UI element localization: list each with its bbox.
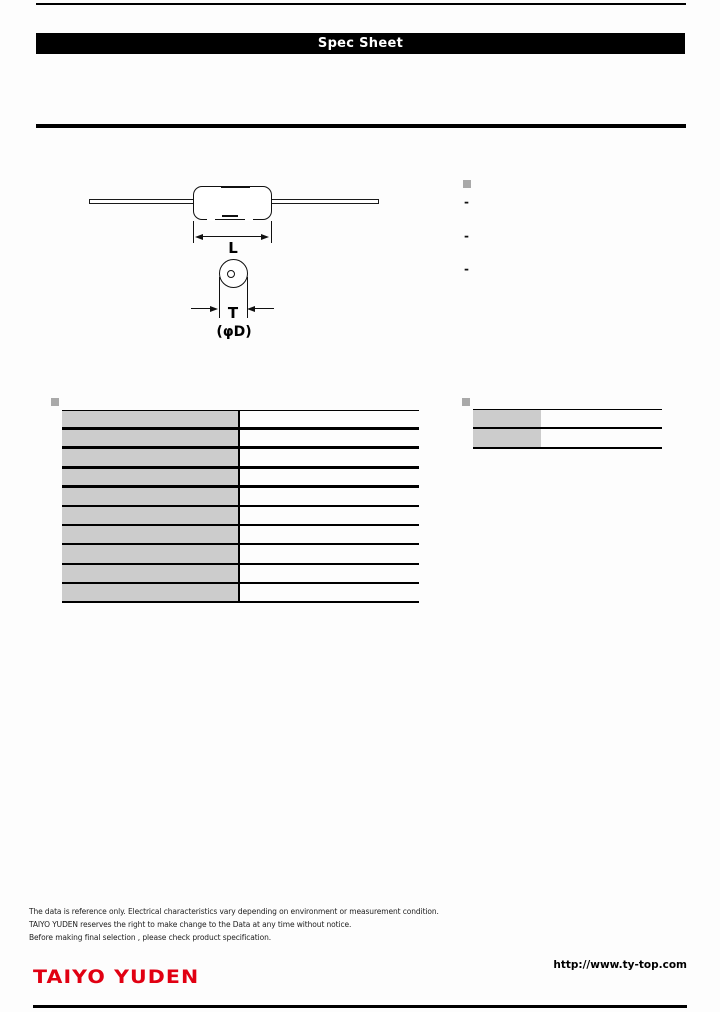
spec-label-cell — [62, 526, 240, 543]
side-value-cell — [541, 429, 662, 446]
spec-sheet-page: Spec Sheet L T (φD) - - - — [0, 0, 720, 1012]
arrowhead-left-icon — [195, 234, 203, 240]
dim-label-length: L — [222, 239, 244, 257]
bottom-rule — [33, 1005, 687, 1008]
spec-label-cell — [62, 411, 240, 427]
table-row — [62, 449, 419, 468]
dim-label-thickness: T — [222, 304, 244, 322]
body-bottom-dash — [222, 215, 238, 217]
section-bullet-icon — [463, 180, 471, 188]
spec-label-cell — [62, 430, 240, 446]
side-value-cell — [541, 410, 662, 427]
side-label-cell — [473, 410, 541, 427]
taiyo-yuden-logo: TAIYO YUDEN — [33, 966, 199, 988]
disclaimer-line: Before making final selection , please c… — [29, 932, 439, 945]
body-bottom-gap-left — [207, 217, 215, 221]
side-table — [473, 409, 662, 449]
dim-line-T-left — [191, 308, 212, 309]
banner-title: Spec Sheet — [318, 36, 403, 51]
spec-value-cell — [240, 584, 419, 601]
table-row — [473, 429, 662, 448]
spec-value-cell — [240, 545, 419, 562]
top-rule — [36, 3, 686, 5]
table-row — [62, 565, 419, 584]
disclaimer-line: TAIYO YUDEN reserves the right to make c… — [29, 919, 439, 932]
dim-line-L — [199, 236, 266, 237]
spec-value-cell — [240, 469, 419, 485]
arrowhead-right-icon — [261, 234, 269, 240]
table-row — [62, 507, 419, 526]
body-top-dash — [221, 186, 250, 188]
dim-ext-line-right — [271, 221, 272, 243]
table-row — [62, 430, 419, 449]
side-label-cell — [473, 429, 541, 446]
spec-table — [62, 410, 419, 603]
arrowhead-T-left-icon — [210, 306, 218, 312]
spec-label-cell — [62, 488, 240, 505]
spec-label-cell — [62, 507, 240, 524]
dim-label-diameter: (φD) — [209, 324, 259, 340]
table-row — [62, 584, 419, 603]
spec-label-cell — [62, 469, 240, 485]
arrowhead-T-right-icon — [247, 306, 255, 312]
spec-value-cell — [240, 430, 419, 446]
tangent-line-left — [219, 277, 220, 318]
table-row — [62, 526, 419, 545]
note-item: - — [464, 230, 469, 242]
table-row — [62, 488, 419, 507]
table-row — [62, 545, 419, 564]
website-url-link[interactable]: http://www.ty-top.com — [553, 959, 687, 971]
spec-label-cell — [62, 565, 240, 582]
disclaimer-line: The data is reference only. Electrical c… — [29, 906, 439, 919]
body-bottom-gap-right — [245, 217, 253, 221]
footer-disclaimers: The data is reference only. Electrical c… — [29, 906, 439, 945]
dim-ext-line-left — [193, 221, 194, 243]
spec-label-cell — [62, 449, 240, 465]
note-item: - — [464, 196, 469, 208]
spec-value-cell — [240, 507, 419, 524]
table-row — [473, 410, 662, 429]
note-item: - — [464, 263, 469, 275]
spec-value-cell — [240, 526, 419, 543]
tangent-line-right — [247, 277, 248, 318]
spec-value-cell — [240, 411, 419, 427]
header-rule — [36, 124, 686, 128]
dim-line-T-right — [253, 308, 274, 309]
end-view-inner-circle — [227, 270, 235, 278]
spec-value-cell — [240, 565, 419, 582]
table-row — [62, 411, 419, 430]
section-bullet-icon — [51, 398, 59, 406]
spec-label-cell — [62, 545, 240, 562]
section-bullet-icon — [462, 398, 470, 406]
spec-value-cell — [240, 449, 419, 465]
table-row — [62, 469, 419, 488]
spec-sheet-banner: Spec Sheet — [36, 33, 685, 54]
spec-label-cell — [62, 584, 240, 601]
spec-value-cell — [240, 488, 419, 505]
